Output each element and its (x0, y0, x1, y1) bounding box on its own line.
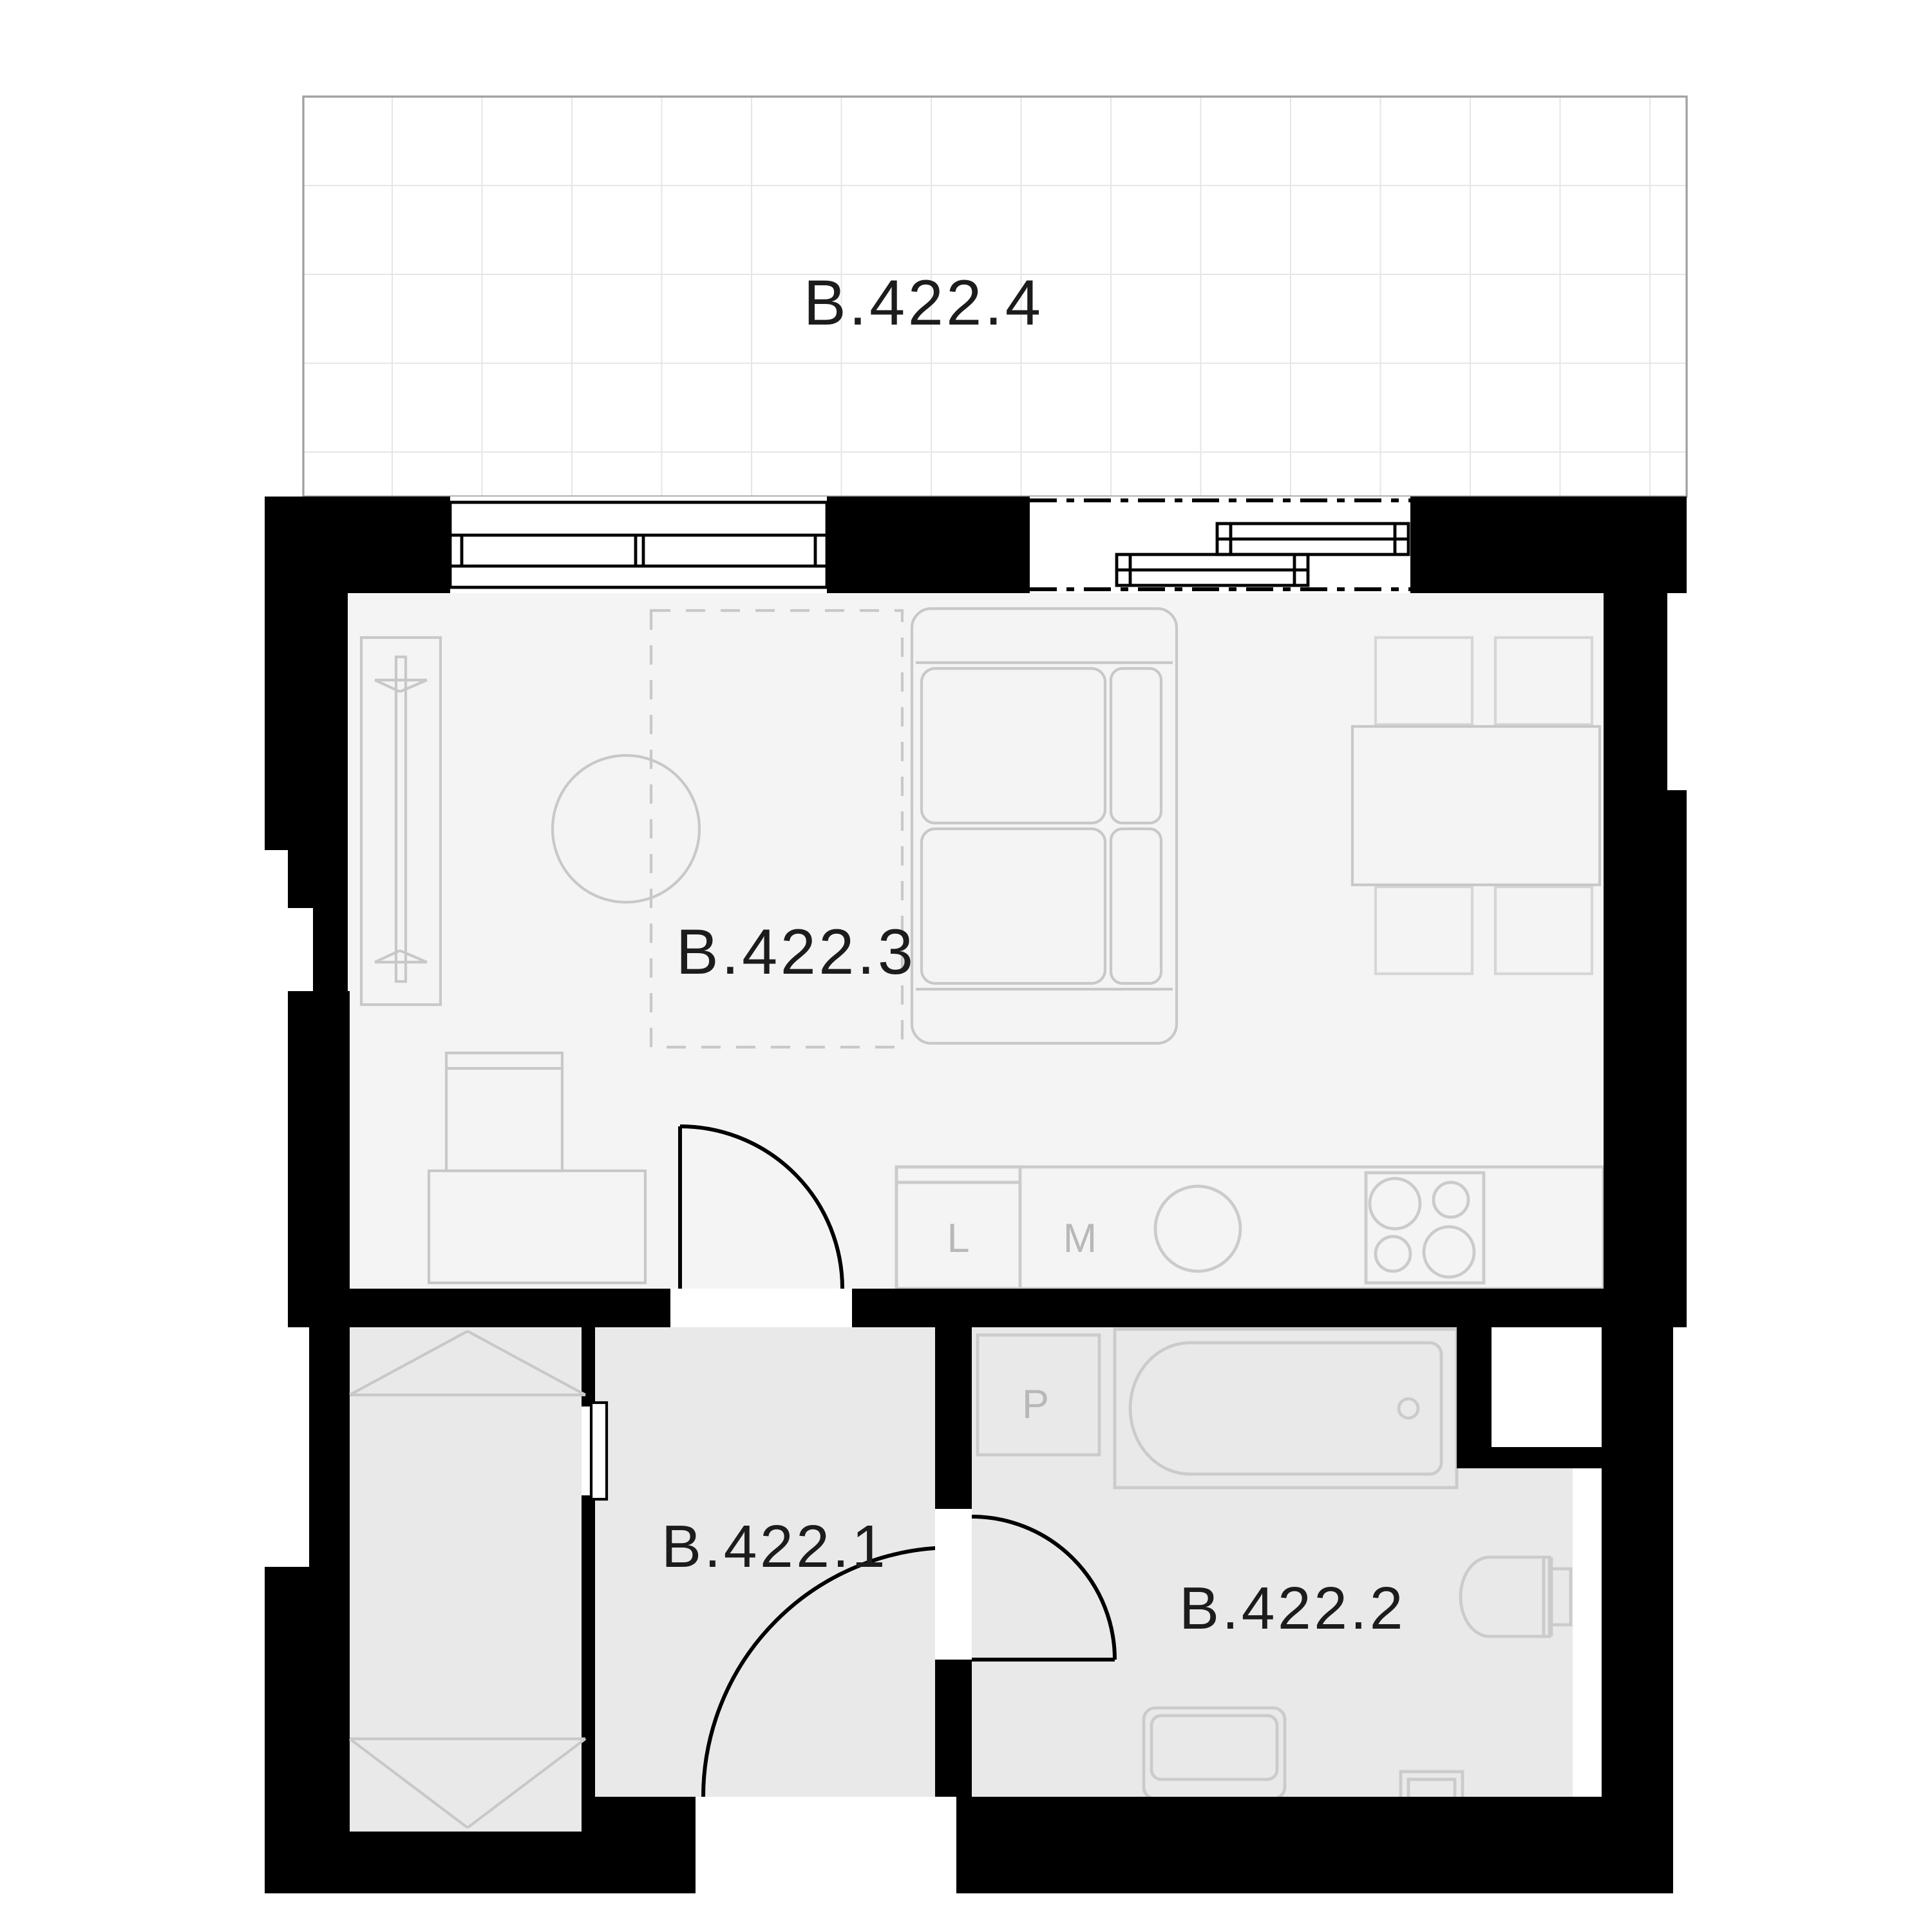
room-floors (348, 593, 1604, 1832)
floor-plan-canvas: B.422.4 B.422.3 B.422.1 B.422.2 L M P (0, 0, 1932, 1932)
shaft-door-leaf (582, 1403, 607, 1499)
wall-bathroom-right (1602, 1327, 1673, 1893)
wall-left-notch (313, 908, 348, 991)
wall-shaft-left (309, 1327, 350, 1832)
hallway-label: B.422.1 (661, 1513, 888, 1580)
wall-niche-bottom (1457, 1447, 1602, 1468)
washer-label: P (1022, 1382, 1049, 1427)
wall-mid-left (348, 1289, 670, 1327)
wall-niche-left (1457, 1327, 1492, 1447)
living-label: B.422.3 (676, 916, 916, 987)
bathroom-floor-right (1457, 1468, 1573, 1797)
sliding-door (1030, 497, 1410, 593)
wall-top-left (265, 497, 450, 593)
wall-left-upper (265, 593, 348, 850)
shaft-room-floor (350, 1327, 582, 1832)
terrace-label: B.422.4 (804, 267, 1044, 338)
wall-right-lower (1604, 790, 1687, 1327)
wall-mid-right (852, 1289, 1604, 1327)
wall-left-step (288, 850, 348, 908)
fridge-label: M (1063, 1216, 1097, 1261)
wall-top-right (1410, 497, 1687, 593)
wall-left-lower (288, 991, 350, 1327)
living-room-floor (348, 593, 1604, 1289)
wall-bottom-under-shaft (309, 1832, 595, 1893)
dishwasher-label: L (947, 1216, 969, 1261)
wall-bath-partition-upper (935, 1327, 972, 1509)
wall-right-upper (1604, 593, 1667, 790)
bathroom-label: B.422.2 (1179, 1575, 1406, 1642)
wall-shaft-partition-lower (582, 1495, 595, 1832)
floor-plan-drawing: B.422.4 B.422.3 B.422.1 B.422.2 L M P (0, 0, 1932, 1932)
wall-bottom-left-of-entry (595, 1797, 696, 1893)
exterior-strip (1573, 1468, 1602, 1797)
wall-top-middle (827, 497, 1030, 593)
wall-bottom-right-of-entry (956, 1797, 1602, 1893)
wall-corner-bottom-left (265, 1567, 309, 1893)
shaft-niche (1492, 1327, 1602, 1447)
window (450, 497, 827, 593)
